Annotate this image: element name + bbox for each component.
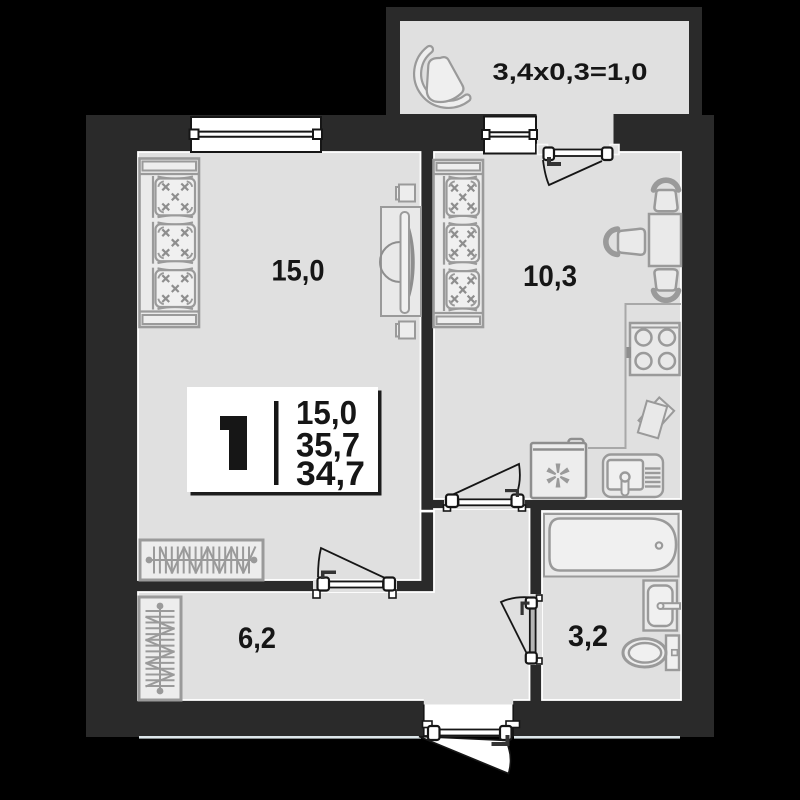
svg-text:3,2: 3,2	[568, 620, 608, 653]
svg-text:3,4х0,3=1,0: 3,4х0,3=1,0	[493, 59, 648, 86]
svg-text:15,0: 15,0	[296, 394, 357, 431]
svg-text:10,3: 10,3	[523, 260, 577, 293]
svg-text:34,7: 34,7	[296, 455, 365, 493]
svg-text:15,0: 15,0	[272, 255, 325, 288]
svg-text:6,2: 6,2	[238, 622, 276, 655]
